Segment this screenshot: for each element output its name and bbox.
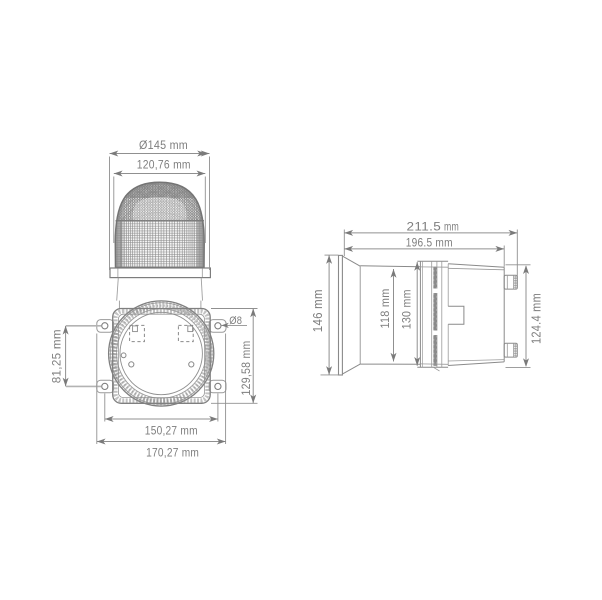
svg-text:120,76 mm: 120,76 mm [137,157,191,171]
svg-text:Ø8: Ø8 [229,315,242,327]
svg-text:Ø145 mm: Ø145 mm [139,138,188,152]
svg-text:150,27 mm: 150,27 mm [145,424,198,438]
svg-text:129,58 mm: 129,58 mm [239,341,253,396]
svg-text:118 mm: 118 mm [378,289,392,329]
svg-text:124.4 mm: 124.4 mm [529,293,544,344]
svg-text:211.5: 211.5 [407,220,442,234]
svg-text:196.5 mm: 196.5 mm [406,236,453,250]
svg-text:170,27 mm: 170,27 mm [146,446,199,460]
svg-text:130 mm: 130 mm [400,289,414,329]
svg-text:146 mm: 146 mm [310,289,325,332]
svg-text:mm: mm [444,220,459,234]
svg-text:81,25 mm: 81,25 mm [50,329,64,383]
